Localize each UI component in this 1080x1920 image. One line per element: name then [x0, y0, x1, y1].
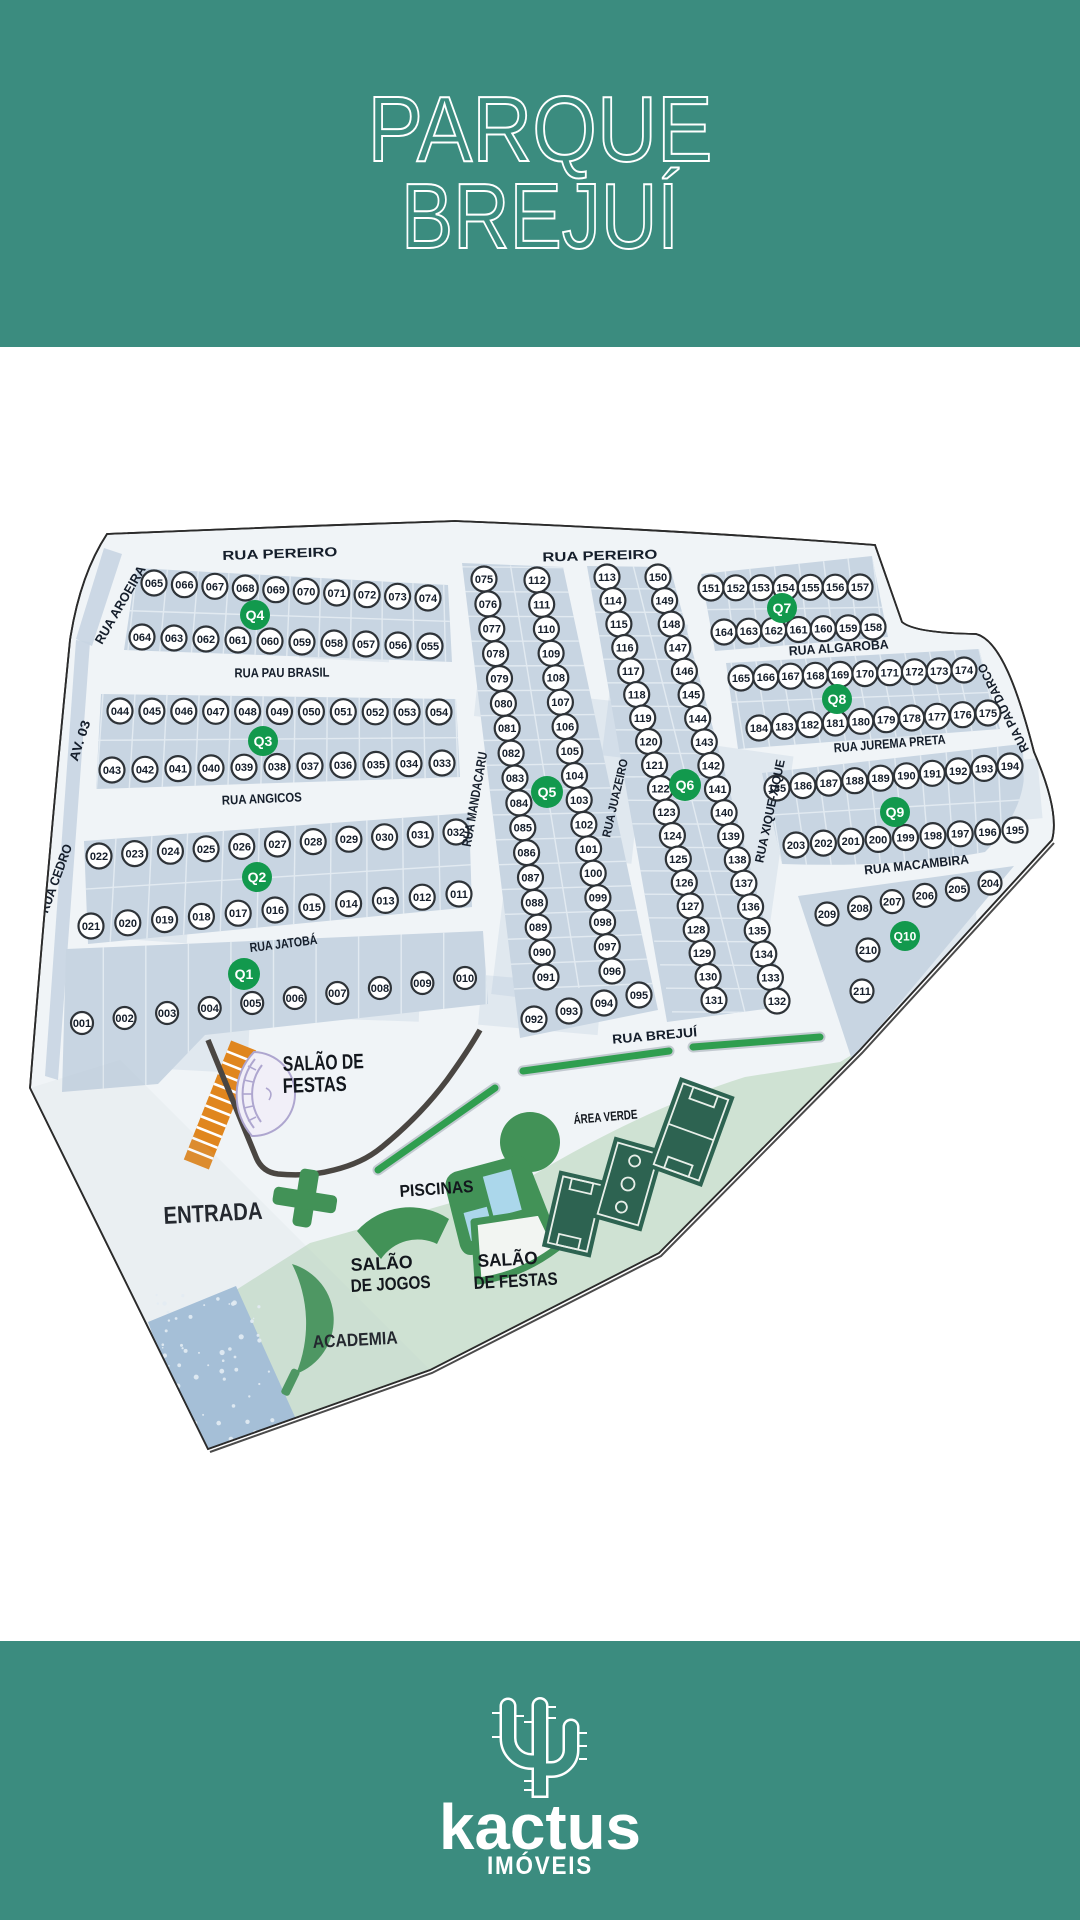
svg-text:078: 078 — [486, 649, 504, 661]
svg-text:096: 096 — [603, 966, 621, 978]
svg-text:192: 192 — [949, 766, 967, 778]
svg-text:092: 092 — [525, 1014, 543, 1026]
svg-text:SALÃO: SALÃO — [477, 1247, 538, 1271]
svg-text:Q6: Q6 — [676, 777, 695, 793]
svg-text:122: 122 — [651, 784, 669, 796]
svg-text:155: 155 — [801, 582, 819, 594]
svg-text:016: 016 — [266, 905, 284, 917]
svg-text:FESTAS: FESTAS — [282, 1073, 347, 1098]
svg-text:101: 101 — [579, 844, 597, 856]
svg-text:127: 127 — [681, 901, 699, 913]
svg-text:064: 064 — [133, 632, 152, 644]
svg-text:173: 173 — [930, 666, 948, 678]
svg-text:146: 146 — [675, 666, 693, 678]
svg-text:201: 201 — [842, 836, 860, 848]
svg-text:031: 031 — [411, 829, 429, 841]
svg-text:042: 042 — [136, 764, 154, 776]
svg-text:072: 072 — [358, 590, 376, 602]
svg-text:Q10: Q10 — [894, 929, 917, 943]
svg-text:066: 066 — [175, 580, 193, 592]
svg-text:025: 025 — [197, 844, 215, 856]
svg-text:013: 013 — [376, 895, 394, 907]
svg-text:207: 207 — [883, 897, 901, 909]
svg-text:010: 010 — [456, 973, 474, 985]
svg-text:099: 099 — [589, 893, 607, 905]
svg-text:075: 075 — [475, 574, 493, 586]
svg-text:182: 182 — [801, 720, 819, 732]
svg-text:Q3: Q3 — [254, 733, 273, 749]
svg-text:023: 023 — [126, 849, 144, 861]
svg-text:197: 197 — [951, 829, 969, 841]
svg-text:003: 003 — [158, 1008, 176, 1020]
svg-text:187: 187 — [820, 778, 838, 790]
svg-text:005: 005 — [243, 998, 261, 1010]
svg-text:206: 206 — [916, 890, 934, 902]
svg-text:128: 128 — [687, 925, 705, 937]
svg-text:049: 049 — [270, 707, 288, 719]
svg-text:083: 083 — [506, 773, 524, 785]
svg-text:060: 060 — [261, 636, 279, 648]
svg-text:065: 065 — [145, 578, 163, 590]
svg-text:026: 026 — [233, 841, 251, 853]
svg-text:166: 166 — [757, 672, 775, 684]
svg-text:045: 045 — [143, 706, 161, 718]
svg-text:014: 014 — [339, 899, 358, 911]
svg-text:061: 061 — [229, 635, 247, 647]
svg-text:162: 162 — [765, 625, 783, 637]
svg-text:067: 067 — [206, 581, 224, 593]
svg-text:175: 175 — [979, 708, 997, 720]
svg-text:157: 157 — [851, 582, 869, 594]
svg-text:084: 084 — [510, 798, 529, 810]
svg-text:113: 113 — [598, 572, 616, 584]
svg-text:034: 034 — [400, 759, 419, 771]
svg-text:172: 172 — [905, 667, 923, 679]
svg-text:091: 091 — [537, 972, 555, 984]
svg-text:161: 161 — [789, 625, 807, 637]
svg-text:036: 036 — [334, 760, 352, 772]
svg-text:076: 076 — [479, 599, 497, 611]
svg-text:027: 027 — [268, 839, 286, 851]
svg-text:020: 020 — [119, 918, 137, 930]
svg-text:039: 039 — [235, 762, 253, 774]
svg-text:037: 037 — [301, 761, 319, 773]
svg-text:056: 056 — [389, 640, 407, 652]
svg-text:174: 174 — [955, 665, 974, 677]
svg-text:142: 142 — [702, 760, 720, 772]
svg-text:080: 080 — [494, 698, 512, 710]
svg-text:179: 179 — [877, 715, 895, 727]
svg-text:004: 004 — [201, 1003, 220, 1015]
svg-text:098: 098 — [593, 917, 611, 929]
svg-text:209: 209 — [818, 909, 836, 921]
svg-text:Q8: Q8 — [828, 691, 847, 707]
svg-text:038: 038 — [268, 762, 286, 774]
svg-text:012: 012 — [413, 892, 431, 904]
svg-text:053: 053 — [398, 707, 416, 719]
svg-text:IMÓVEIS: IMÓVEIS — [487, 1850, 593, 1880]
svg-text:047: 047 — [207, 706, 225, 718]
svg-text:112: 112 — [528, 575, 546, 587]
svg-text:048: 048 — [238, 706, 256, 718]
svg-text:021: 021 — [82, 921, 100, 933]
svg-text:044: 044 — [111, 706, 130, 718]
svg-text:SALÃO DE: SALÃO DE — [282, 1050, 364, 1076]
svg-text:109: 109 — [542, 648, 560, 660]
svg-text:126: 126 — [675, 878, 693, 890]
svg-text:210: 210 — [859, 945, 877, 957]
svg-text:068: 068 — [236, 583, 254, 595]
svg-text:141: 141 — [708, 784, 726, 796]
svg-text:125: 125 — [669, 854, 687, 866]
svg-text:033: 033 — [433, 758, 451, 770]
svg-text:077: 077 — [483, 624, 501, 636]
svg-text:134: 134 — [755, 949, 774, 961]
svg-text:129: 129 — [693, 948, 711, 960]
svg-text:116: 116 — [616, 643, 634, 655]
svg-text:191: 191 — [923, 768, 941, 780]
svg-text:001: 001 — [73, 1018, 91, 1030]
svg-text:205: 205 — [948, 884, 966, 896]
svg-text:063: 063 — [165, 633, 183, 645]
svg-text:DE JOGOS: DE JOGOS — [350, 1272, 431, 1296]
svg-text:054: 054 — [430, 707, 449, 719]
svg-text:046: 046 — [175, 706, 193, 718]
svg-text:011: 011 — [450, 889, 468, 901]
svg-text:124: 124 — [663, 831, 682, 843]
svg-text:123: 123 — [657, 807, 675, 819]
svg-text:104: 104 — [565, 771, 584, 783]
svg-text:186: 186 — [794, 781, 812, 793]
svg-text:150: 150 — [649, 572, 667, 584]
svg-text:118: 118 — [628, 690, 646, 702]
svg-text:006: 006 — [286, 993, 304, 1005]
svg-text:088: 088 — [525, 897, 543, 909]
svg-text:081: 081 — [498, 723, 516, 735]
svg-text:090: 090 — [533, 947, 551, 959]
svg-text:208: 208 — [850, 903, 868, 915]
svg-text:Q2: Q2 — [248, 869, 267, 885]
svg-text:115: 115 — [610, 619, 628, 631]
svg-text:178: 178 — [903, 713, 921, 725]
svg-text:105: 105 — [561, 746, 579, 758]
svg-text:136: 136 — [741, 902, 759, 914]
svg-text:059: 059 — [293, 637, 311, 649]
svg-text:120: 120 — [639, 737, 657, 749]
svg-text:106: 106 — [556, 722, 574, 734]
svg-text:131: 131 — [705, 995, 723, 1007]
svg-text:002: 002 — [115, 1013, 133, 1025]
svg-text:041: 041 — [169, 764, 187, 776]
svg-text:073: 073 — [388, 591, 406, 603]
svg-text:154: 154 — [776, 583, 795, 595]
svg-text:143: 143 — [695, 737, 713, 749]
svg-text:093: 093 — [560, 1006, 578, 1018]
svg-text:057: 057 — [357, 639, 375, 651]
svg-text:135: 135 — [748, 925, 766, 937]
svg-text:211: 211 — [853, 986, 871, 998]
svg-text:085: 085 — [514, 823, 532, 835]
svg-text:165: 165 — [732, 673, 750, 685]
svg-text:176: 176 — [953, 710, 971, 722]
svg-text:Q5: Q5 — [538, 784, 557, 800]
svg-text:015: 015 — [303, 902, 321, 914]
svg-text:009: 009 — [413, 978, 431, 990]
svg-text:029: 029 — [340, 834, 358, 846]
svg-text:151: 151 — [702, 583, 720, 595]
svg-text:069: 069 — [267, 585, 285, 597]
svg-text:139: 139 — [722, 831, 740, 843]
svg-text:089: 089 — [529, 922, 547, 934]
svg-text:163: 163 — [740, 626, 758, 638]
svg-text:008: 008 — [371, 983, 389, 995]
svg-text:097: 097 — [598, 942, 616, 954]
svg-text:043: 043 — [103, 765, 121, 777]
svg-text:144: 144 — [689, 713, 708, 725]
svg-text:040: 040 — [202, 763, 220, 775]
svg-text:082: 082 — [502, 748, 520, 760]
svg-text:070: 070 — [297, 586, 315, 598]
svg-text:052: 052 — [366, 707, 384, 719]
svg-text:198: 198 — [924, 831, 942, 843]
svg-text:RUA PEREIRO: RUA PEREIRO — [542, 546, 657, 564]
svg-text:153: 153 — [752, 583, 770, 595]
svg-text:087: 087 — [521, 873, 539, 885]
svg-text:183: 183 — [775, 721, 793, 733]
svg-text:051: 051 — [334, 707, 352, 719]
svg-text:152: 152 — [727, 583, 745, 595]
svg-text:024: 024 — [161, 846, 180, 858]
svg-text:193: 193 — [975, 763, 993, 775]
svg-text:055: 055 — [421, 641, 439, 653]
svg-text:110: 110 — [538, 624, 556, 636]
svg-text:148: 148 — [662, 619, 680, 631]
svg-text:094: 094 — [595, 998, 614, 1010]
svg-text:111: 111 — [533, 599, 550, 611]
svg-text:RUA PAU BRASIL: RUA PAU BRASIL — [234, 665, 329, 681]
svg-text:028: 028 — [304, 837, 322, 849]
svg-text:160: 160 — [814, 624, 832, 636]
svg-text:203: 203 — [787, 840, 805, 852]
svg-text:133: 133 — [761, 972, 779, 984]
svg-text:158: 158 — [864, 622, 882, 634]
svg-text:019: 019 — [155, 915, 173, 927]
svg-text:058: 058 — [325, 638, 343, 650]
svg-text:022: 022 — [90, 851, 108, 863]
svg-text:062: 062 — [197, 634, 215, 646]
svg-text:177: 177 — [928, 711, 946, 723]
svg-text:195: 195 — [1006, 825, 1024, 837]
svg-text:188: 188 — [846, 776, 864, 788]
svg-text:114: 114 — [604, 596, 623, 608]
svg-text:Q1: Q1 — [235, 966, 254, 982]
svg-text:121: 121 — [645, 760, 663, 772]
svg-text:074: 074 — [419, 593, 438, 605]
svg-text:170: 170 — [856, 669, 874, 681]
svg-text:190: 190 — [897, 771, 915, 783]
svg-text:189: 189 — [871, 773, 889, 785]
svg-text:140: 140 — [715, 808, 733, 820]
svg-text:138: 138 — [728, 855, 746, 867]
svg-text:169: 169 — [831, 669, 849, 681]
svg-text:030: 030 — [375, 832, 393, 844]
svg-text:202: 202 — [814, 838, 832, 850]
svg-text:095: 095 — [630, 990, 648, 1002]
svg-text:204: 204 — [981, 878, 1000, 890]
svg-text:Q4: Q4 — [246, 607, 265, 623]
svg-text:164: 164 — [715, 627, 734, 639]
svg-text:147: 147 — [669, 643, 687, 655]
svg-text:180: 180 — [852, 716, 870, 728]
svg-text:050: 050 — [302, 707, 320, 719]
svg-text:035: 035 — [367, 759, 385, 771]
svg-text:071: 071 — [328, 588, 346, 600]
svg-text:119: 119 — [634, 713, 652, 725]
svg-text:100: 100 — [584, 868, 602, 880]
svg-text:017: 017 — [229, 908, 247, 920]
svg-text:108: 108 — [547, 673, 565, 685]
svg-text:199: 199 — [896, 833, 914, 845]
svg-text:149: 149 — [655, 596, 673, 608]
svg-text:079: 079 — [490, 674, 508, 686]
svg-text:Q9: Q9 — [886, 804, 905, 820]
svg-text:145: 145 — [682, 690, 700, 702]
svg-text:196: 196 — [978, 827, 996, 839]
svg-text:BREJUÍ: BREJUÍ — [401, 164, 679, 268]
svg-text:184: 184 — [750, 723, 769, 735]
svg-text:130: 130 — [699, 972, 717, 984]
svg-text:102: 102 — [575, 819, 593, 831]
svg-text:086: 086 — [517, 848, 535, 860]
svg-text:137: 137 — [735, 878, 753, 890]
svg-text:171: 171 — [881, 668, 899, 680]
svg-text:107: 107 — [551, 697, 569, 709]
svg-text:Q7: Q7 — [773, 600, 792, 616]
svg-text:132: 132 — [768, 996, 786, 1008]
svg-text:167: 167 — [781, 671, 799, 683]
svg-text:168: 168 — [806, 670, 824, 682]
svg-text:117: 117 — [622, 666, 640, 678]
svg-text:200: 200 — [869, 834, 887, 846]
svg-text:103: 103 — [570, 795, 588, 807]
svg-text:SALÃO: SALÃO — [350, 1251, 413, 1275]
svg-text:156: 156 — [826, 582, 844, 594]
svg-text:007: 007 — [328, 988, 346, 1000]
svg-text:018: 018 — [192, 911, 210, 923]
svg-text:194: 194 — [1001, 761, 1020, 773]
svg-text:181: 181 — [826, 718, 844, 730]
svg-text:159: 159 — [839, 623, 857, 635]
